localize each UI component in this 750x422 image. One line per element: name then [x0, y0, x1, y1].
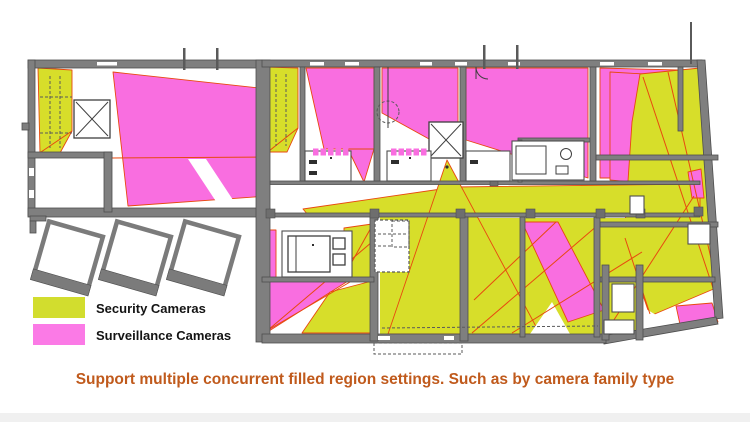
closet — [688, 224, 710, 244]
elevator-shaft — [429, 122, 463, 158]
security-region — [267, 67, 298, 152]
dashed-balcony-outline — [374, 343, 462, 354]
legend-label-surveillance: Surveillance Cameras — [96, 328, 231, 343]
bedroom — [282, 231, 352, 277]
surveillance-region — [306, 68, 374, 149]
legend-label-security: Security Cameras — [96, 301, 206, 316]
closet — [604, 320, 634, 334]
slide-edge — [0, 413, 750, 422]
caption: Support multiple concurrent filled regio… — [76, 371, 675, 388]
dashed-stair — [375, 220, 409, 272]
closet — [630, 196, 644, 214]
legend-swatch-surveillance — [33, 324, 85, 345]
balconies — [30, 216, 241, 296]
closet — [612, 284, 634, 312]
surveillance-region — [113, 72, 268, 206]
surveillance-region — [348, 149, 374, 182]
bathroom — [512, 141, 584, 180]
slide-canvas: Security Cameras Surveillance Cameras Su… — [0, 0, 750, 422]
security-region — [38, 68, 72, 153]
elevator-shaft — [74, 100, 110, 138]
legend: Security Cameras Surveillance Cameras — [33, 297, 231, 345]
legend-swatch-security — [33, 297, 85, 318]
floorplan-graphic: Security Cameras Surveillance Cameras Su… — [0, 0, 750, 422]
